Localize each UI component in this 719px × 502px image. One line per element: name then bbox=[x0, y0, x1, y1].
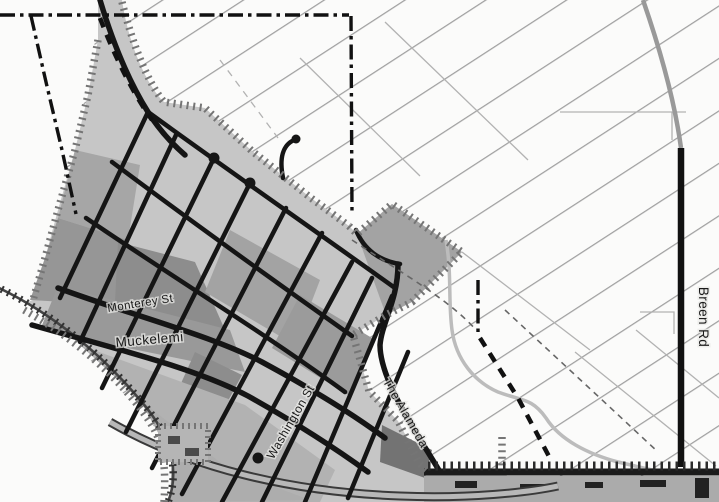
street-label-breen: Breen Rd bbox=[696, 287, 711, 347]
city-map-canvas[interactable]: Monterey St Muckelemi Washington St The … bbox=[0, 0, 719, 502]
zoning-map-viewport[interactable]: Monterey St Muckelemi Washington St The … bbox=[0, 0, 719, 502]
